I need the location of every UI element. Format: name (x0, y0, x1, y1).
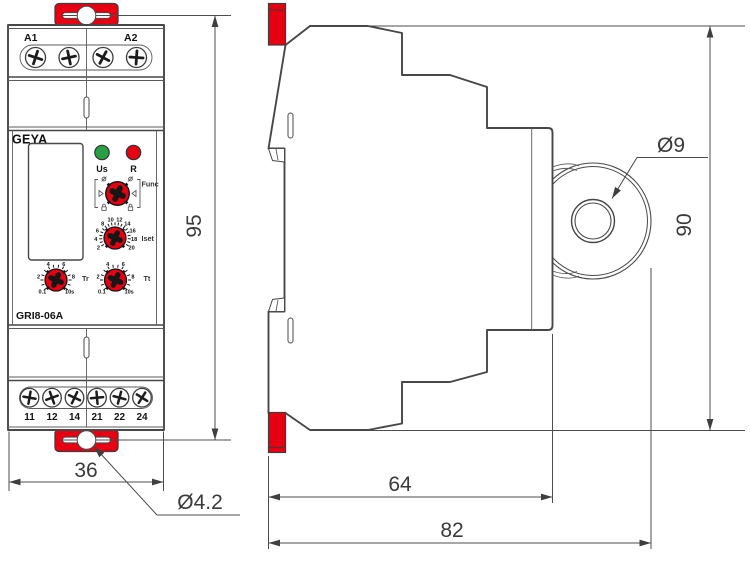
dial-scale-label: 14 (124, 221, 131, 227)
terminal-number: 24 (136, 412, 148, 423)
dial-tick (58, 265, 59, 268)
screw-terminal (110, 388, 129, 407)
front-body (8, 25, 164, 430)
rail-catch-top (269, 149, 285, 163)
dim-hole-9: Ø9 (657, 134, 685, 157)
dial-scale-label: 6 (96, 228, 99, 234)
terminal-number: 12 (46, 412, 58, 423)
screw-terminal (43, 388, 62, 407)
dial-scale-label: 6 (62, 262, 65, 268)
terminal-label-a2: A2 (124, 32, 138, 44)
top-mounting-tab (55, 4, 231, 26)
terminal-number: 11 (24, 412, 35, 423)
tr-knob[interactable] (45, 269, 67, 291)
terminal-number: 22 (114, 412, 126, 423)
dimension-body-depth: 64 (269, 473, 553, 497)
terminal-number: 21 (91, 412, 103, 423)
latch-slot-bottom (84, 337, 89, 358)
led-us-label: Us (96, 164, 108, 174)
screw-terminal (88, 388, 107, 407)
dial-scale-label: 8 (131, 274, 134, 280)
dim-hole-4-2: Ø4.2 (177, 491, 223, 514)
latch-slot-top (84, 97, 89, 118)
terminal-number: 14 (69, 412, 81, 423)
dial-tick (128, 235, 131, 236)
dial-scale-label: 8 (72, 274, 75, 280)
tt-label: Tt (144, 274, 151, 283)
side-view (269, 4, 746, 550)
dial-scale-label: 18 (131, 237, 137, 243)
dial-scale-label: 12 (116, 217, 122, 223)
dial-scale-label: 2 (97, 274, 100, 280)
tt-knob[interactable] (105, 269, 127, 291)
func-knob[interactable] (106, 182, 130, 206)
screw-terminal (26, 48, 46, 68)
led-red (126, 145, 140, 159)
iset-label: Iset (142, 234, 155, 243)
dial-scale-label: 10s (65, 289, 74, 295)
din-clip-bottom[interactable] (269, 413, 286, 453)
side-slot-bottom (288, 318, 293, 343)
side-body (269, 26, 553, 430)
terminal-label-a1: A1 (24, 32, 38, 44)
dial-tick (53, 265, 54, 268)
ear-hole (575, 203, 611, 239)
side-slot-top (288, 113, 293, 138)
dial-tick (118, 265, 119, 268)
bottom-mounting-tab (55, 430, 231, 452)
dial-scale-label: 10s (124, 289, 133, 295)
dim-64: 64 (388, 473, 412, 496)
screw-terminal (20, 388, 39, 407)
screw-terminal (93, 48, 113, 68)
dial-tick (113, 265, 114, 268)
screw-terminal (65, 388, 84, 407)
dimension-drawing-page: A1 A2 GEYA Us R Fun (0, 0, 750, 563)
dim-36: 36 (74, 459, 97, 482)
dial-scale-label: 2 (37, 274, 40, 280)
dial-tick (99, 235, 102, 236)
dial-scale-label: 0.1 (38, 289, 46, 295)
dim-95: 95 (183, 214, 206, 237)
dimension-front-height: 95 (183, 16, 215, 441)
iset-knob[interactable] (104, 227, 126, 249)
dimension-side-height: 90 (673, 26, 710, 431)
tab-hole (77, 6, 96, 25)
dimension-total-depth: 82 (269, 519, 652, 543)
led-green (95, 145, 109, 159)
screw-terminal (127, 48, 147, 68)
model-label: GRI8-06A (16, 310, 64, 322)
dial-scale-label: 20 (129, 246, 135, 252)
screw-terminal (133, 388, 152, 407)
dimension-drawing: A1 A2 GEYA Us R Fun (0, 0, 750, 563)
dial-scale-label: 6 (122, 262, 125, 268)
rail-catch-bottom (269, 298, 285, 312)
led-r-label: R (130, 164, 137, 174)
tr-label: Tr (82, 274, 89, 283)
dial-scale-label: 0.1 (98, 289, 106, 295)
dial-scale-label: 10 (107, 217, 113, 223)
dial-scale-label: 2 (97, 246, 100, 252)
dim-82: 82 (440, 519, 463, 542)
tab-hole (77, 431, 96, 450)
screw-terminal (59, 48, 79, 68)
dial-scale-label: 8 (101, 221, 104, 227)
din-clip-top[interactable] (269, 4, 286, 46)
func-label: Func (142, 180, 159, 189)
dimension-tab-hole: Ø4.2 (94, 447, 240, 516)
dim-90: 90 (673, 213, 696, 236)
dial-scale-label: 16 (130, 228, 136, 234)
